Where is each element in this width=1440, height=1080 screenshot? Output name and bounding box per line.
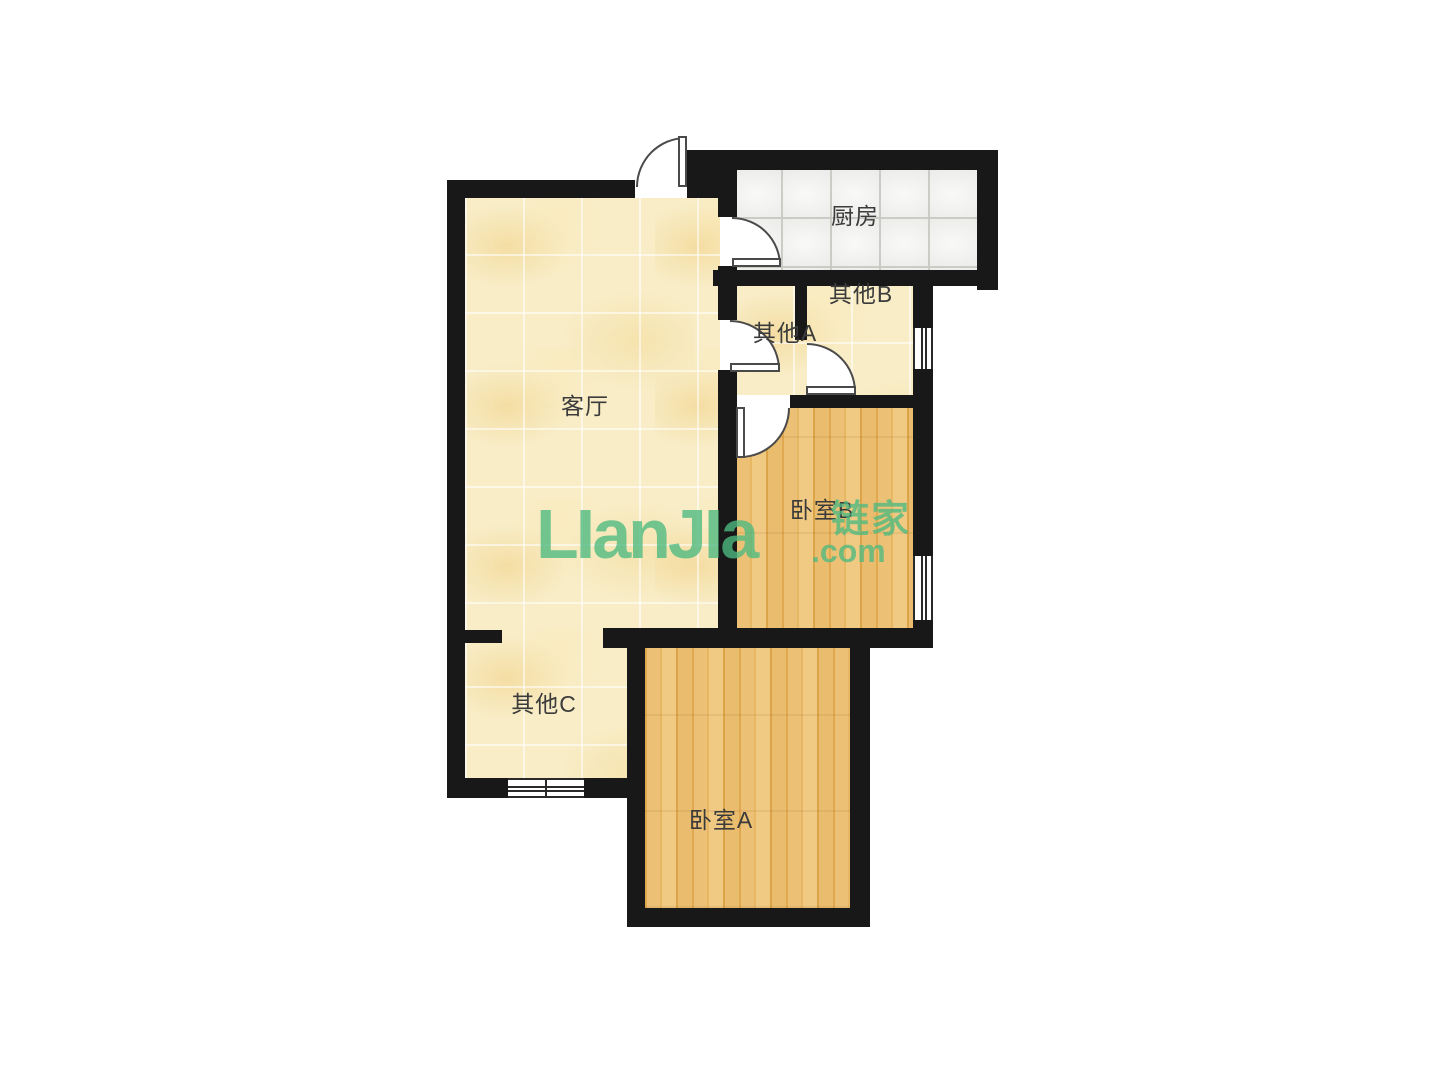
bedroom-b-door-leaf-icon (736, 407, 745, 458)
room-label-other-b: 其他B (829, 275, 893, 309)
window-other-c-icon (505, 778, 587, 798)
window-bedroom-b-icon (913, 553, 933, 623)
window-other-b-icon (913, 325, 933, 372)
lianjia-logo-text: LIanJIa (536, 499, 756, 569)
room-label-living: 客厅 (561, 387, 609, 421)
floor-plan-canvas: 客厅 厨房 其他A 其他B 其他C 卧室A 卧室B LIanJIa 链家 .co… (0, 0, 1440, 1080)
wall-left-outer (447, 180, 465, 798)
room-label-other-c: 其他C (511, 685, 577, 719)
wall-kitchen-right (977, 150, 998, 290)
wall-right-middle (913, 372, 933, 553)
wall-bedroom-b-top-right (790, 395, 933, 408)
wall-bedroom-b-bottom (603, 628, 933, 648)
wall-living-stub (465, 630, 502, 643)
wall-bedroom-a-right (850, 648, 870, 927)
wall-right-upper (913, 286, 933, 325)
wall-bedroom-b-top-left (718, 395, 737, 408)
wall-kitchen-top (713, 150, 998, 170)
wall-divider-seg2 (718, 266, 737, 320)
wall-living-top (447, 180, 635, 198)
bedroom-a-floor (645, 643, 850, 908)
wall-other-c-bottom-left (447, 778, 505, 798)
wall-other-c-bottom-right (587, 778, 645, 798)
room-label-bedroom-a: 卧室A (689, 801, 753, 835)
room-label-kitchen: 厨房 (831, 197, 879, 231)
other-b-door-leaf-icon (806, 386, 856, 395)
entry-door-leaf-icon (678, 136, 687, 187)
wall-bedroom-a-bottom (627, 908, 870, 927)
other-a-door-leaf-icon (730, 363, 780, 372)
lianjia-com-text: .com (811, 535, 886, 567)
room-label-other-a: 其他A (753, 314, 817, 348)
wall-divider-seg1 (718, 198, 737, 217)
kitchen-door-leaf-icon (732, 258, 781, 267)
